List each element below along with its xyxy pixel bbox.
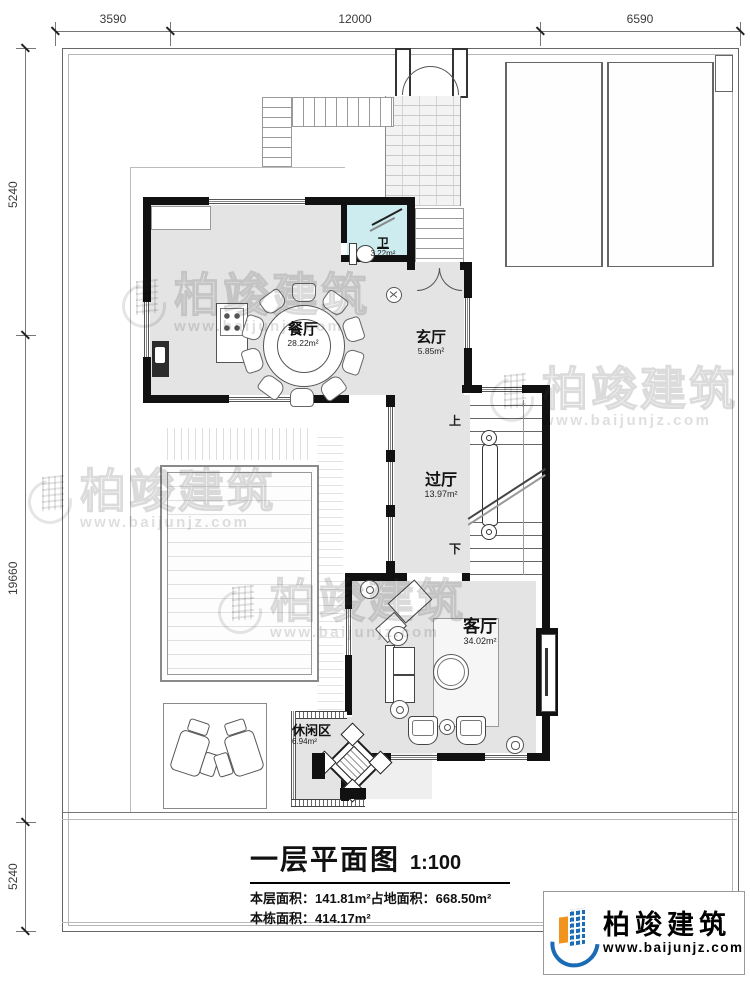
patio-outline: [130, 167, 131, 812]
site-bottom-line: [62, 819, 737, 820]
room-label-bath: 卫 3.22m²: [355, 237, 411, 259]
floor-plan-page: 3590 12000 6590 5240 19660 5240: [0, 0, 750, 982]
company-website: www.baijunjz.com: [603, 940, 744, 955]
room-label-entry: 玄厅 5.85m²: [401, 330, 461, 356]
planter: [340, 788, 366, 799]
dim-left-1: 5240: [6, 150, 20, 240]
room-label-hall: 过厅 13.97m²: [408, 472, 474, 499]
logo-building-blue: [568, 908, 585, 946]
armchair: [408, 716, 438, 745]
room-area: 13.97m²: [408, 490, 474, 500]
dim-left-3: 5240: [6, 832, 20, 922]
cooktop-icon: [220, 308, 244, 336]
tv-cabinet: [541, 634, 556, 712]
room-area: 3.22m²: [355, 250, 411, 259]
area-line-1: 本层面积：141.81m²占地面积：668.50m²: [250, 889, 510, 909]
small-table-icon: [439, 719, 455, 735]
side-table-icon: [390, 700, 409, 719]
title-block: 一层平面图 1:100 本层面积：141.81m²占地面积：668.50m² 本…: [250, 838, 510, 929]
stair-treads-lower: [470, 510, 542, 581]
room-name: 玄厅: [401, 330, 461, 347]
patio-outline: [130, 167, 345, 168]
railing-cap-icon: [481, 524, 497, 540]
company-logo-icon: [552, 903, 596, 963]
planter: [312, 753, 325, 779]
ceiling-lamp-icon: [360, 580, 379, 599]
room-name: 过厅: [408, 472, 474, 490]
window: [465, 298, 470, 348]
courtyard-slab-1: [505, 62, 603, 267]
window: [485, 755, 527, 760]
chair: [292, 283, 316, 302]
tv-icon: [545, 648, 548, 696]
stair-treads-upper: [470, 393, 542, 457]
window: [346, 609, 351, 655]
kitchen-counter: [151, 206, 211, 230]
room-area: 28.22m²: [263, 339, 343, 348]
window: [391, 755, 437, 760]
garden-steps-horizontal: [292, 97, 394, 127]
drawing-scale: 1:100: [410, 852, 461, 875]
building-area: 本栋面积：414.17m²: [250, 911, 371, 926]
window: [209, 199, 305, 204]
coffee-table: [433, 654, 469, 690]
left-dimension-line: [25, 48, 26, 932]
logo-building-orange: [559, 916, 568, 943]
chair: [290, 388, 314, 407]
window: [482, 387, 522, 392]
drawing-title: 一层平面图: [250, 838, 400, 878]
stair-up-label: 上: [449, 412, 461, 429]
land-area: 占地面积：668.50m²: [371, 891, 492, 906]
room-label-living: 客厅 34.02m²: [440, 618, 520, 647]
dim-ext: [170, 22, 171, 46]
sofa-cushion: [393, 675, 415, 703]
glass-wall: [295, 711, 347, 719]
dim-ext: [55, 22, 56, 46]
railing-cap-icon: [481, 430, 497, 446]
dim-top-3: 6590: [600, 12, 680, 26]
company-name: 柏竣建筑: [603, 911, 744, 939]
site-bottom-wall: [62, 812, 737, 813]
dim-left-2: 19660: [6, 528, 20, 628]
room-area: 6.94m²: [292, 738, 354, 747]
pool-water: [167, 472, 312, 675]
courtyard-slab-2: [607, 62, 714, 267]
top-dimension-line: [55, 31, 740, 32]
dim-ext: [540, 22, 541, 46]
garden-steps-vertical: [262, 97, 292, 167]
window: [388, 403, 393, 573]
armchair: [456, 716, 486, 745]
dim-top-1: 3590: [75, 12, 151, 26]
company-logo-box: 柏竣建筑 www.baijunjz.com: [543, 891, 745, 975]
side-table-icon: [388, 626, 408, 646]
porch-steps: [415, 208, 464, 264]
side-gate-post: [715, 55, 733, 92]
entry-brick-path: [385, 96, 461, 206]
leisure-table-top: [336, 746, 373, 783]
sofa-cushion: [393, 647, 415, 675]
dim-ext: [740, 22, 741, 46]
room-area: 34.02m²: [440, 637, 520, 647]
plant-icon: [386, 287, 402, 303]
swimming-pool: [160, 465, 319, 682]
ceiling-lamp-icon: [506, 736, 524, 754]
room-area: 5.85m²: [401, 347, 461, 356]
room-name: 休闲区: [292, 724, 354, 738]
room-label-leisure: 休闲区 6.94m²: [292, 724, 354, 747]
area-line-2: 本栋面积：414.17m²: [250, 909, 510, 929]
room-label-dining: 餐厅 28.22m²: [263, 322, 343, 348]
room-name: 客厅: [440, 618, 520, 637]
room-name: 餐厅: [263, 322, 343, 339]
stair-down-label: 下: [449, 540, 461, 557]
floor-area: 本层面积：141.81m²: [250, 891, 371, 906]
dim-top-2: 12000: [315, 12, 395, 26]
pool-deck-top: [161, 428, 314, 460]
kitchen-sink: [152, 341, 169, 377]
window: [144, 302, 149, 357]
